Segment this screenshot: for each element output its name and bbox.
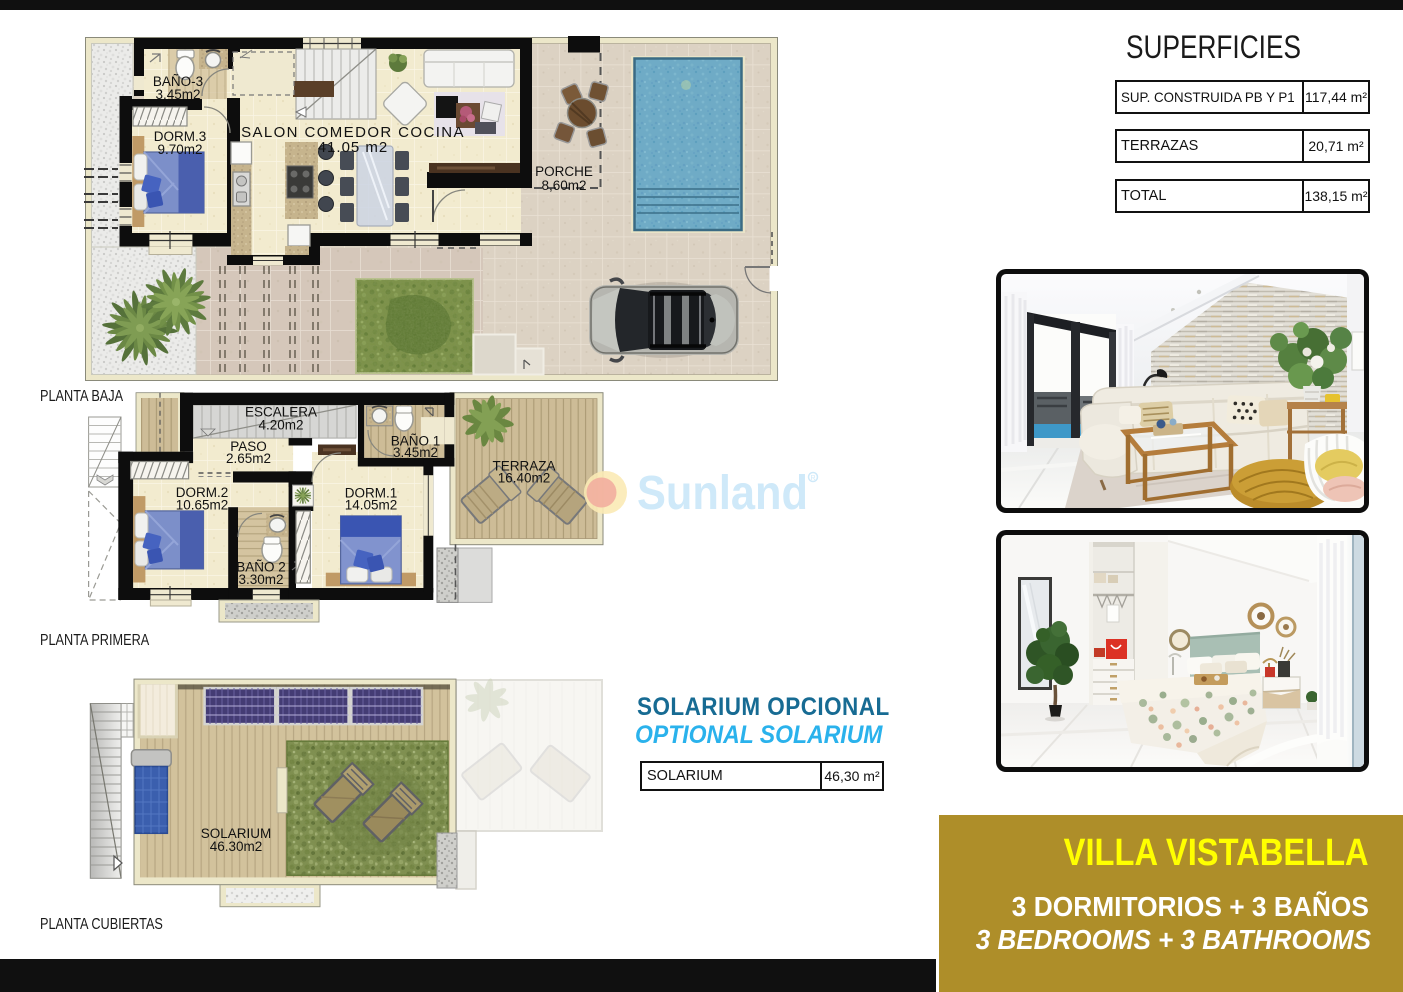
svg-text:9.70m2: 9.70m2 [157,142,202,157]
svg-text:16.40m2: 16.40m2 [498,471,551,486]
svg-text:2.65m2: 2.65m2 [226,451,271,466]
svg-text:10.65m2: 10.65m2 [176,498,229,513]
svg-text:41.05 m2: 41.05 m2 [318,139,389,156]
svg-text:14.05m2: 14.05m2 [345,498,398,513]
svg-text:3.45m2: 3.45m2 [155,87,200,102]
svg-text:4.20m2: 4.20m2 [258,418,303,433]
svg-text:3.45m2: 3.45m2 [393,445,438,460]
svg-text:PORCHE: PORCHE [535,164,593,179]
svg-text:8,60m2: 8,60m2 [541,178,586,193]
svg-text:3.30m2: 3.30m2 [238,572,283,587]
svg-text:R: R [811,475,816,482]
svg-text:Sunland: Sunland [637,467,808,520]
svg-text:46.30m2: 46.30m2 [210,839,263,854]
